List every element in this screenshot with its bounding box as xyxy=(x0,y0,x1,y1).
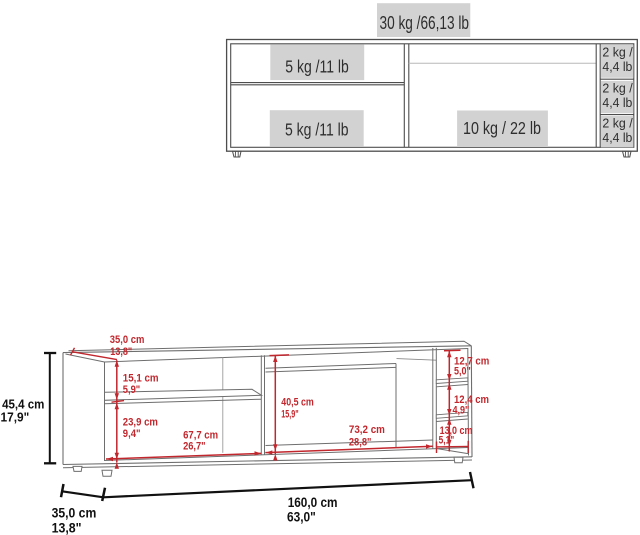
svg-text:2 kg /: 2 kg / xyxy=(602,46,633,60)
svg-text:73,2 cm: 73,2 cm xyxy=(349,424,385,436)
svg-text:5 kg /11 lb: 5 kg /11 lb xyxy=(285,119,349,139)
svg-text:17,9": 17,9" xyxy=(1,411,30,425)
svg-text:13,8": 13,8" xyxy=(52,520,82,535)
svg-text:2 kg /: 2 kg / xyxy=(602,82,633,96)
svg-text:5,9": 5,9" xyxy=(123,384,140,396)
svg-text:10 kg / 22 lb: 10 kg / 22 lb xyxy=(463,118,541,138)
svg-text:4,4 lb: 4,4 lb xyxy=(602,131,632,145)
svg-text:23,9 cm: 23,9 cm xyxy=(123,417,158,429)
svg-text:45,4 cm: 45,4 cm xyxy=(2,398,44,412)
svg-text:67,7 cm: 67,7 cm xyxy=(183,430,218,442)
svg-text:2 kg /: 2 kg / xyxy=(602,117,633,131)
svg-text:5,0": 5,0" xyxy=(454,366,471,378)
svg-text:4,4 lb: 4,4 lb xyxy=(602,60,632,74)
svg-text:30 kg /66,13 lb: 30 kg /66,13 lb xyxy=(380,13,470,33)
svg-text:15,9": 15,9" xyxy=(281,409,298,421)
svg-text:15,1 cm: 15,1 cm xyxy=(123,373,159,385)
svg-text:13,8": 13,8" xyxy=(110,346,132,358)
svg-text:9,4": 9,4" xyxy=(123,428,141,440)
svg-text:35,0 cm: 35,0 cm xyxy=(110,334,145,346)
svg-text:4,9": 4,9" xyxy=(453,404,470,416)
svg-text:5,1": 5,1" xyxy=(439,435,455,447)
svg-text:5 kg /11 lb: 5 kg /11 lb xyxy=(285,57,349,77)
svg-text:26,7": 26,7" xyxy=(183,441,206,453)
svg-text:28,8": 28,8" xyxy=(349,436,372,448)
svg-text:35,0 cm: 35,0 cm xyxy=(52,505,97,521)
svg-text:4,4 lb: 4,4 lb xyxy=(602,96,632,110)
svg-text:63,0": 63,0" xyxy=(287,509,316,525)
svg-text:40,5 cm: 40,5 cm xyxy=(281,397,314,409)
